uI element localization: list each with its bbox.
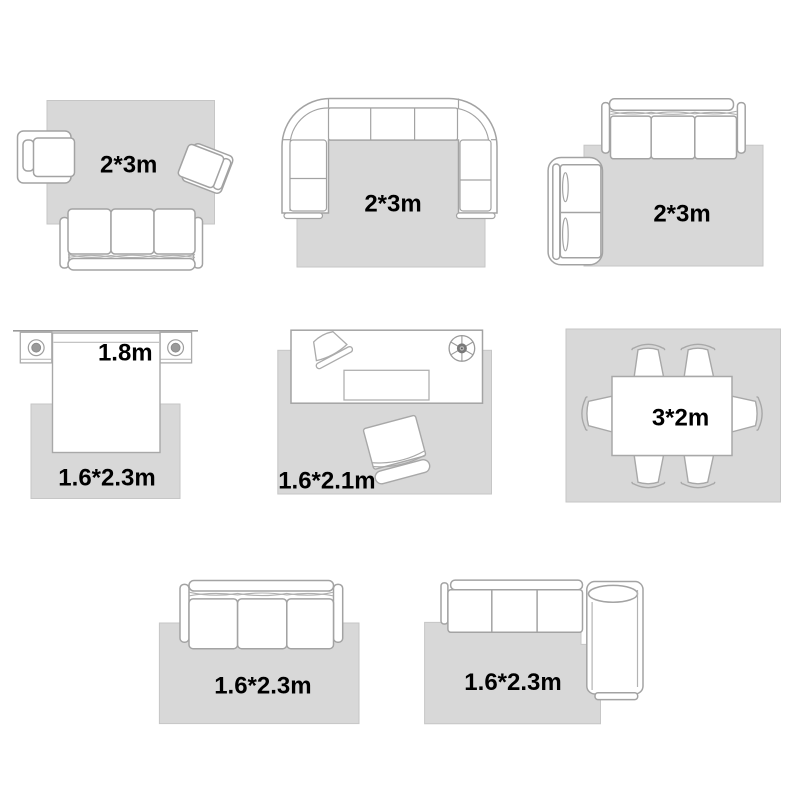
svg-text:2*3m: 2*3m: [364, 191, 421, 218]
svg-text:2*3m: 2*3m: [100, 152, 157, 179]
svg-text:1.8m: 1.8m: [98, 340, 153, 367]
svg-text:1.6*2.3m: 1.6*2.3m: [58, 464, 155, 491]
svg-text:2*3m: 2*3m: [653, 201, 710, 228]
svg-text:1.6*2.3m: 1.6*2.3m: [214, 672, 311, 699]
svg-text:3*2m: 3*2m: [652, 404, 709, 431]
svg-text:1.6*2.1m: 1.6*2.1m: [278, 467, 375, 494]
svg-text:1.6*2.3m: 1.6*2.3m: [464, 669, 561, 696]
